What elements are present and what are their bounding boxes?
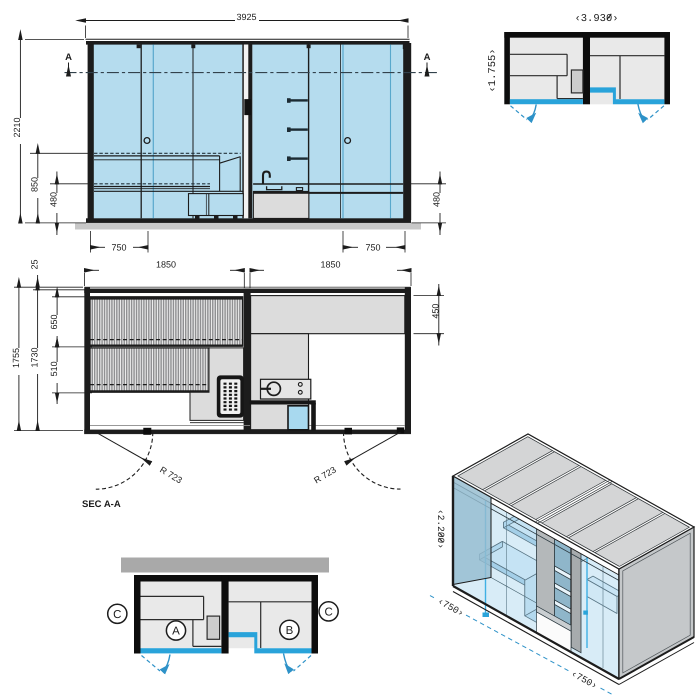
svg-text:3925: 3925 [236,12,256,22]
svg-text:1850: 1850 [156,260,176,270]
svg-text:‹3.930›: ‹3.930› [574,13,618,25]
svg-text:480: 480 [49,192,59,207]
svg-text:C: C [113,609,121,621]
svg-text:‹2.200›: ‹2.200› [435,509,446,549]
svg-text:C: C [324,607,332,619]
svg-text:2210: 2210 [12,117,22,137]
svg-text:A: A [424,52,431,63]
svg-text:450: 450 [431,304,441,319]
svg-text:‹1.755›: ‹1.755› [487,48,499,92]
svg-text:25: 25 [30,259,40,269]
svg-text:650: 650 [49,314,59,329]
svg-text:1850: 1850 [320,260,340,270]
svg-text:480: 480 [432,192,442,207]
svg-text:750: 750 [365,243,380,253]
svg-text:A: A [65,52,72,63]
svg-text:SEC A-A: SEC A-A [82,499,121,510]
svg-text:A: A [172,626,180,638]
svg-text:1755: 1755 [11,348,21,368]
svg-text:750: 750 [111,243,126,253]
svg-text:850: 850 [30,177,40,192]
svg-text:1730: 1730 [30,347,40,367]
svg-text:B: B [286,625,294,637]
svg-text:510: 510 [49,361,59,376]
